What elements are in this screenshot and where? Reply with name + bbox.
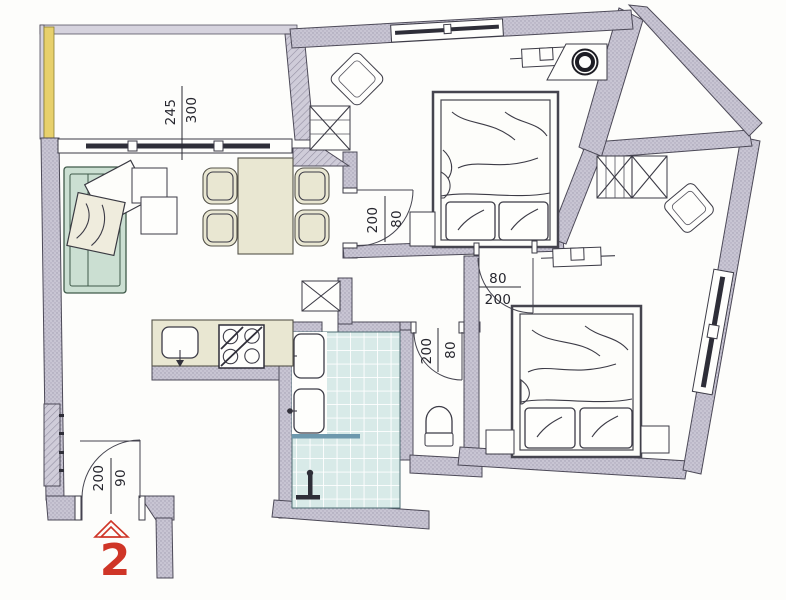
toilet (425, 407, 453, 447)
entry-door (75, 440, 145, 520)
dining-chair (295, 210, 329, 246)
coffee-table-2 (141, 197, 177, 234)
pillow (580, 408, 632, 448)
balcony-dim-b: 245 (163, 99, 179, 126)
bedroom1-door-width: 80 (389, 210, 405, 228)
bed-1 (433, 92, 558, 247)
walls-layer (40, 5, 762, 578)
bedroom2-door-height: 200 (485, 292, 512, 308)
dining-chair (295, 168, 329, 204)
storage-shaft (302, 281, 340, 311)
nightstand (641, 426, 669, 453)
wardrobe-1 (310, 106, 350, 150)
chair-diamond-2 (662, 181, 716, 235)
wc (425, 407, 453, 447)
nightstand (486, 430, 514, 454)
entry-door-height: 200 (91, 465, 107, 492)
dining-table (238, 158, 293, 254)
pillow (446, 202, 495, 240)
balcony-top-wall (40, 25, 297, 34)
stove (219, 325, 264, 368)
unit-number: 2 (100, 535, 131, 586)
bedroom1-door-height: 200 (365, 207, 381, 234)
pillow (499, 202, 548, 240)
kitchen (152, 320, 293, 368)
corridor-east-wall (156, 518, 173, 578)
bedroom1-west-wall-upper (343, 152, 357, 192)
entry-door-width: 90 (113, 469, 129, 487)
bedroom2-door-width: 80 (489, 271, 507, 287)
bed-2 (512, 306, 641, 457)
dining-set (203, 158, 329, 254)
unit-marker: 2 (95, 521, 130, 586)
balcony-dim-a: 300 (184, 97, 200, 124)
floor-plan-page: 300 245 200 80 80 200 200 80 200 90 2 (0, 0, 786, 600)
dining-chair (203, 210, 237, 246)
chair-diamond-1 (329, 51, 386, 108)
pillow (525, 408, 575, 448)
floor-plan: 300 245 200 80 80 200 200 80 200 90 2 (0, 0, 786, 600)
bathroom-shelf (292, 434, 360, 439)
living-room (64, 158, 340, 311)
bathroom (287, 332, 400, 508)
dining-chair (203, 168, 237, 204)
nightstand (410, 212, 435, 246)
balcony-yellow-divider (44, 27, 54, 139)
balcony-sliding-window (58, 139, 292, 153)
wc-door-height: 200 (419, 338, 435, 365)
bedroom2-east-window (692, 269, 733, 395)
wc-west-wall (400, 330, 413, 460)
sofa-cushion-2 (67, 193, 125, 256)
wardrobe-2 (597, 156, 667, 198)
balcony-left-wall (40, 25, 44, 139)
northeast-outer-wall (629, 5, 762, 136)
corner-wall-piece (293, 148, 349, 166)
wc-east-wall (464, 256, 479, 458)
wc-door-width: 80 (443, 341, 459, 359)
